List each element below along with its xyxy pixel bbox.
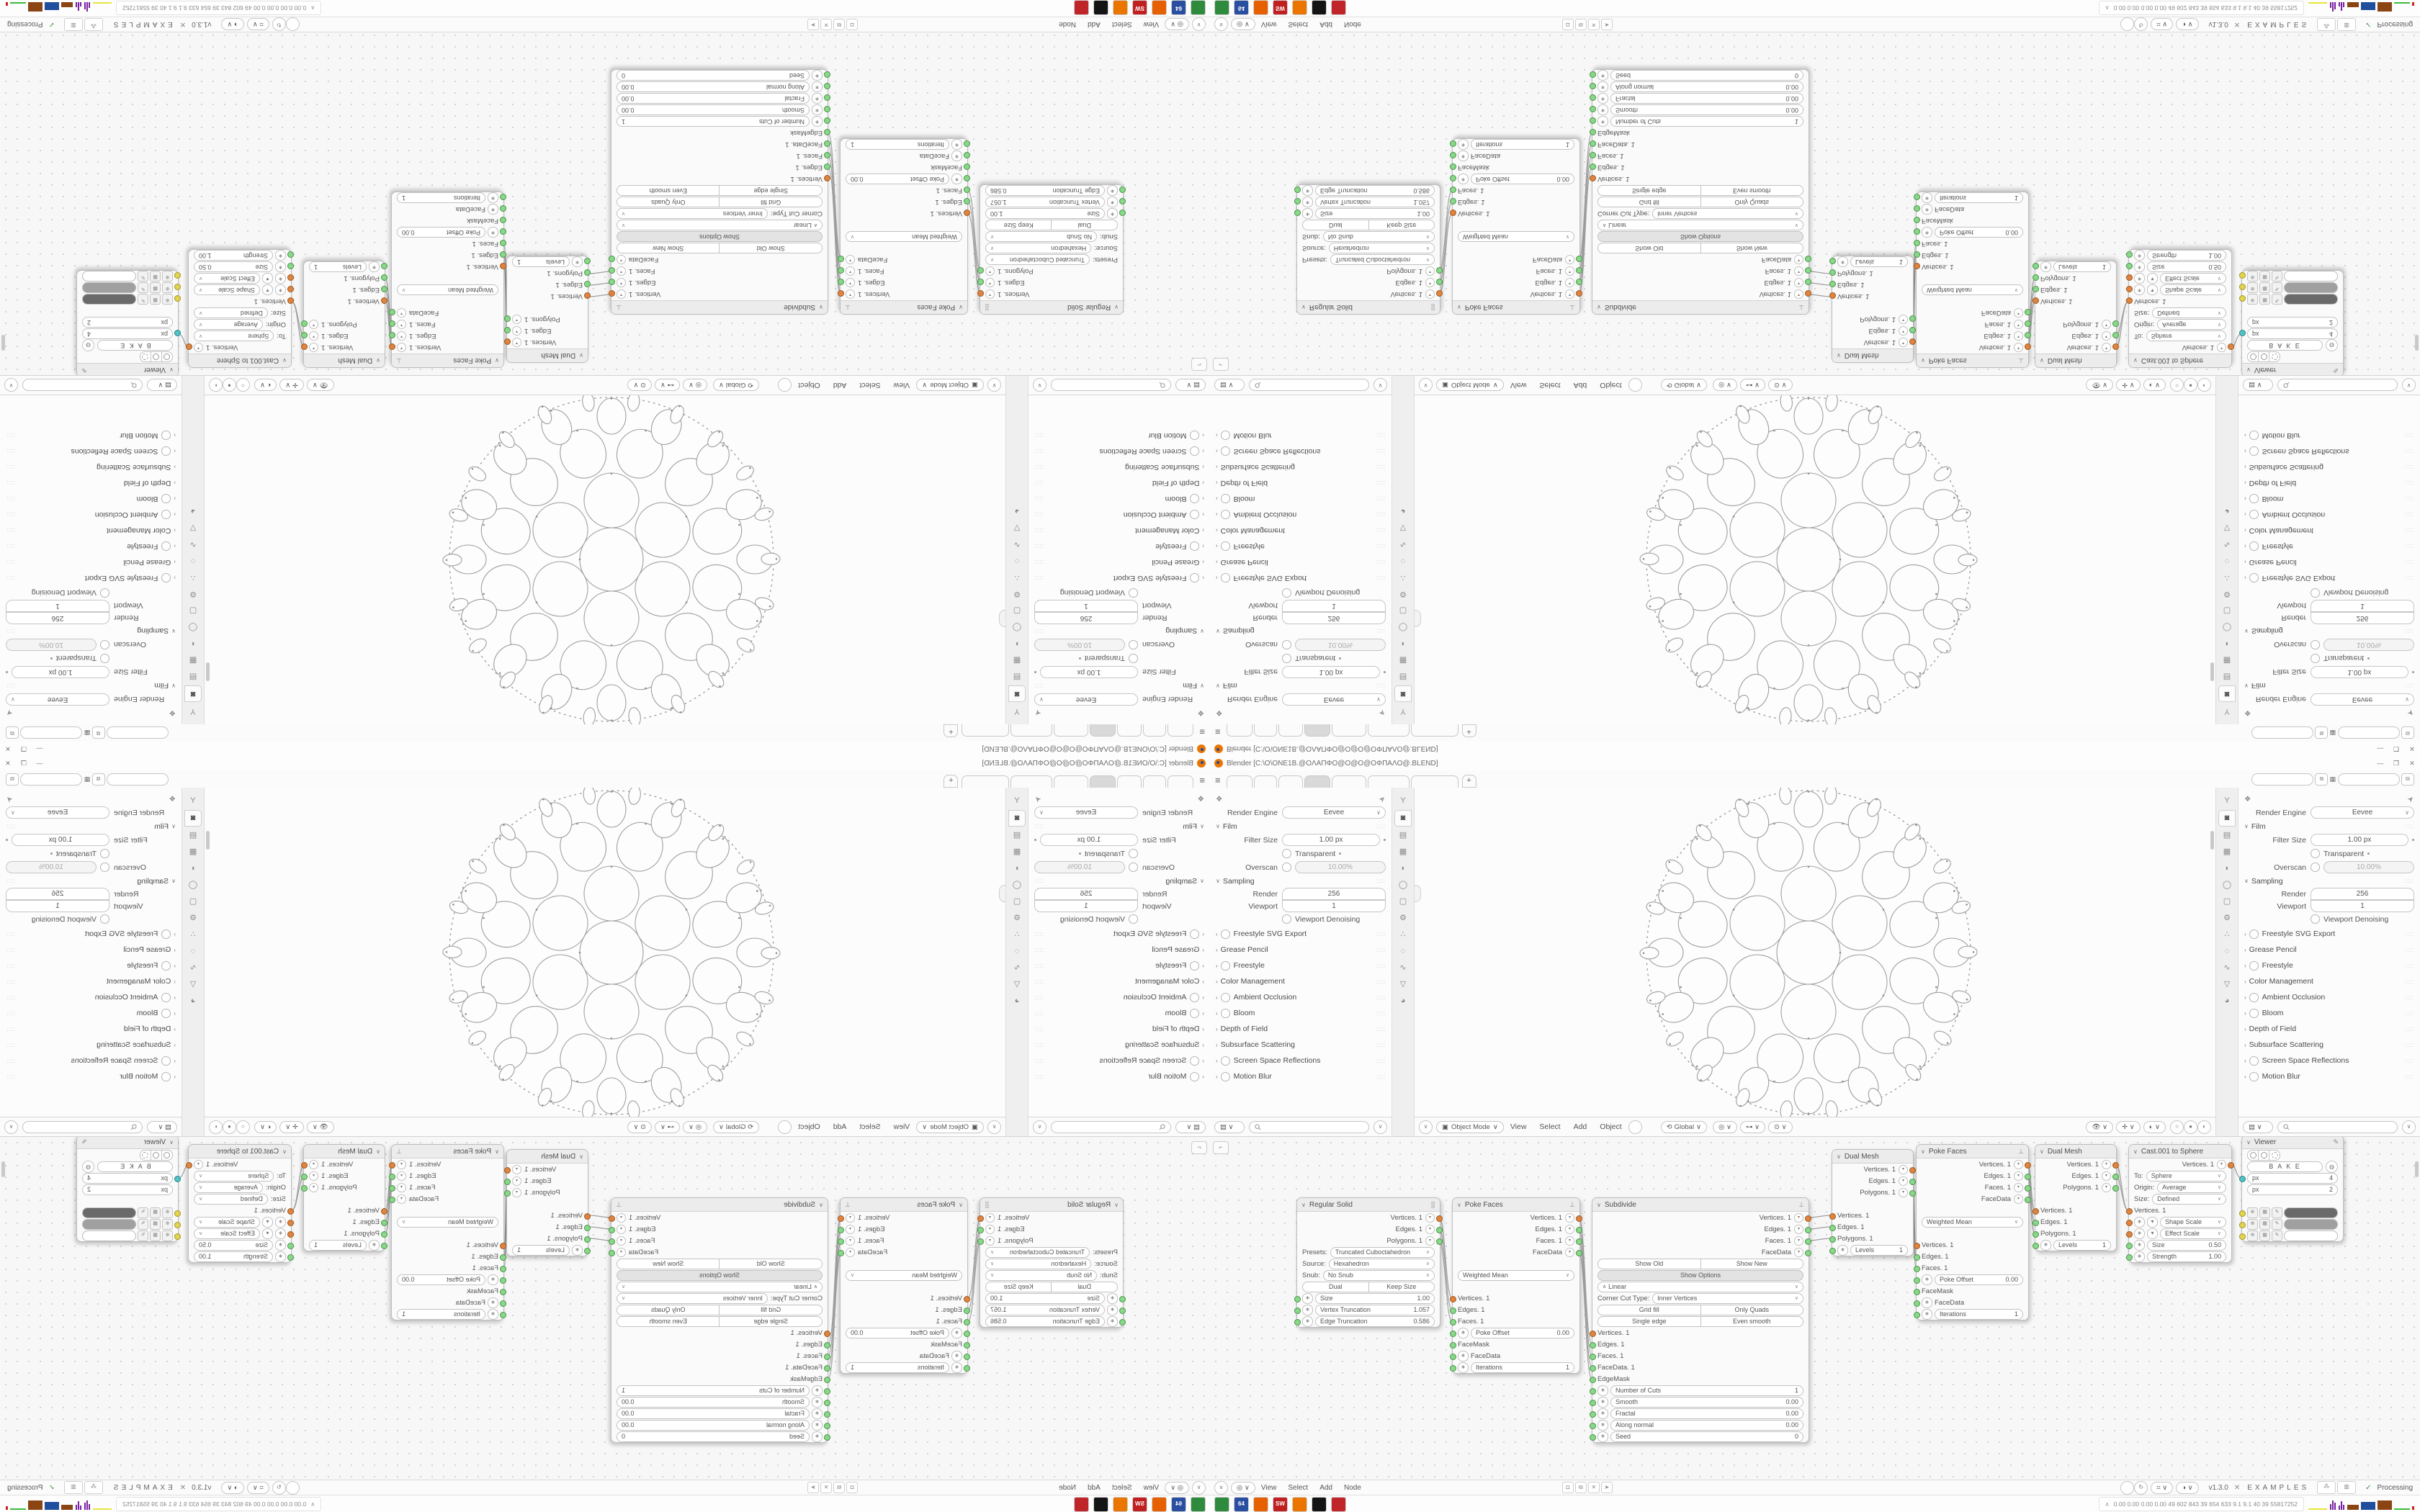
socket-input[interactable] [1119, 1319, 1126, 1326]
node-menu-view[interactable]: View [1144, 21, 1160, 29]
properties-tab-modifiers-icon[interactable]: ⚙ [1009, 911, 1025, 926]
workspace-tab-3[interactable] [1278, 775, 1303, 788]
socket-input[interactable] [1590, 153, 1596, 159]
socket-output[interactable] [609, 1238, 615, 1245]
properties-tab-material-icon[interactable]: ◕ [1009, 994, 1025, 1009]
node-title[interactable]: ∨Regular Solid⣿ [1297, 1198, 1440, 1212]
properties-tab-render-icon[interactable]: ◙ [2218, 685, 2236, 702]
workspace-tab-5[interactable] [1332, 775, 1366, 788]
properties-options-button[interactable]: ∨ [4, 379, 18, 392]
socket-input[interactable] [1294, 210, 1301, 217]
properties-tab-world-icon[interactable]: ◯ [1009, 619, 1025, 634]
properties-tab-physics-icon[interactable]: ◌ [1009, 944, 1025, 959]
close-button[interactable]: ✕ [0, 760, 16, 768]
shading-wireframe-button[interactable]: ○ [236, 1120, 250, 1134]
node-menu-add[interactable]: Add [1319, 21, 1332, 29]
properties-options-button[interactable]: ∨ [2402, 379, 2416, 392]
scene-copy-icon[interactable]: ⧉ [92, 773, 105, 786]
properties-tab-modifiers-icon[interactable]: ⚙ [185, 586, 201, 601]
socket-input[interactable] [1450, 187, 1456, 194]
socket-output[interactable] [389, 1197, 395, 1203]
node-regular-solid[interactable]: ∨Regular Solid⣿Vertices. 1▾Edges. 1▾Poly… [980, 1197, 1124, 1328]
socket-input[interactable] [1450, 141, 1456, 148]
socket-input[interactable] [1914, 1300, 1920, 1307]
properties-tab-output-icon[interactable]: ▤ [185, 828, 201, 843]
socket-input[interactable] [287, 1231, 294, 1238]
node-viewer-draw[interactable]: ∨Viewer✎B A K E◍px4px2⊕▦✎⊕▦✎⊕▦✎ [2241, 270, 2344, 376]
socket-output[interactable] [1805, 1250, 1811, 1256]
socket-output[interactable] [838, 291, 844, 297]
minimize-button[interactable]: — [32, 745, 48, 753]
socket-input[interactable] [1590, 141, 1596, 148]
taskbar-gimp-app-icon[interactable] [1093, 1, 1108, 16]
transform-orientation-select[interactable]: ⟲ Global∨ [1661, 1121, 1707, 1133]
socket-output[interactable] [186, 344, 192, 351]
socket-output[interactable] [2025, 1185, 2031, 1192]
workspace-tab-5[interactable] [1332, 724, 1366, 737]
node-tree-select[interactable]: ◎ ∨ [1231, 1482, 1255, 1494]
node-title[interactable]: ∨Dual Mesh [1832, 1150, 1913, 1164]
shading-solid-button[interactable]: ● [2184, 1120, 2197, 1134]
socket-input[interactable] [2239, 330, 2246, 337]
workspace-tab-3[interactable] [1117, 724, 1142, 737]
socket-output[interactable] [1576, 1215, 1582, 1222]
socket-input[interactable] [1294, 1319, 1301, 1326]
chevron-up-icon[interactable]: ∧ [2105, 4, 2110, 12]
scene-copy-icon[interactable]: ⧉ [2315, 726, 2328, 739]
properties-tab-particles-icon[interactable]: ∴ [185, 570, 201, 585]
pin-icon[interactable]: ➤ [1601, 1482, 1613, 1493]
taskbar-console-app-icon[interactable] [1214, 1497, 1229, 1512]
node-stats-button[interactable]: ⁂ [2317, 1481, 2336, 1494]
node-regular-solid[interactable]: ∨Regular Solid⣿Vertices. 1▾Edges. 1▾Poly… [1296, 1197, 1440, 1328]
socket-input[interactable] [1914, 229, 1920, 235]
socket-input[interactable] [381, 1208, 387, 1215]
taskbar-sw-app-icon[interactable]: SW [1132, 1497, 1147, 1512]
copy-icon[interactable]: ⧉ [833, 1482, 845, 1493]
socket-input[interactable] [381, 1243, 387, 1249]
socket-output[interactable] [389, 1185, 395, 1192]
properties-options-button[interactable]: ∨ [1033, 1120, 1047, 1134]
node-toolbar-tab[interactable]: ⌐ [1191, 1141, 1207, 1154]
properties-search-input[interactable] [22, 1121, 143, 1133]
viewport-extra-button[interactable] [1628, 379, 1642, 392]
socket-input[interactable] [1450, 1308, 1456, 1314]
socket-input[interactable] [824, 1434, 830, 1441]
render-engine-select[interactable]: Eevee∨ [1034, 693, 1138, 706]
socket-output[interactable] [977, 279, 984, 286]
socket-input[interactable] [1450, 1365, 1456, 1372]
sverchok-node-editor[interactable]: ⌐ ∨Regular Solid⣿Vertices. 1▾Edges. 1▾Po… [1210, 32, 2420, 376]
taskbar-floppy-64-app-icon[interactable]: 64 [1171, 1497, 1186, 1512]
viewport-menu-select[interactable]: Select [1539, 381, 1560, 390]
workspace-tab-5[interactable] [1054, 775, 1088, 788]
socket-input[interactable] [1590, 95, 1596, 102]
socket-input[interactable] [964, 1308, 970, 1314]
socket-input[interactable] [1914, 1266, 1920, 1272]
unlink-icon[interactable]: ✕ [1588, 1482, 1600, 1493]
shield-icon[interactable]: ◘ [846, 1482, 858, 1493]
node-menu-view[interactable]: View [1144, 1484, 1160, 1492]
properties-tab-tool-icon[interactable]: Y [1395, 703, 1411, 719]
node-poke-faces-2[interactable]: ∨Poke Faces⊥Vertices. 1▾Edges. 1▾Faces. … [391, 1144, 504, 1320]
node-tree-select[interactable]: ◎ ∨ [1165, 1482, 1189, 1494]
socket-input[interactable] [1450, 1342, 1456, 1349]
socket-input[interactable] [824, 1342, 830, 1349]
properties-options-button[interactable]: ∨ [1373, 379, 1387, 392]
viewport-scrollbar-nub[interactable] [2210, 831, 2214, 850]
taskbar-badge-app-icon[interactable] [1331, 1, 1346, 16]
properties-tab-object-data-icon[interactable]: ▽ [185, 977, 201, 992]
properties-tab-modifiers-icon[interactable]: ⚙ [1395, 586, 1411, 601]
socket-input[interactable] [2239, 296, 2246, 302]
interaction-mode-select[interactable]: ▣ Object Mode∨ [1436, 1121, 1504, 1133]
workspace-tab-2[interactable] [1143, 775, 1166, 788]
socket-input[interactable] [1590, 1342, 1596, 1349]
snap-mode-select[interactable]: ⊶ ∨ [655, 379, 680, 392]
taskbar-firefox-icon[interactable] [1152, 1, 1167, 16]
chart-button[interactable]: ▥ [64, 18, 83, 31]
examples-label[interactable]: EXAMPLES [111, 1484, 173, 1492]
socket-input[interactable] [584, 1248, 591, 1254]
node-poke-faces-2[interactable]: ∨Poke Faces⊥Vertices. 1▾Edges. 1▾Faces. … [1916, 192, 2029, 368]
socket-output[interactable] [389, 310, 395, 316]
node-dual-mesh-1[interactable]: ∨Dual MeshVertices. 1▾Edges. 1▾Polygons.… [1832, 256, 1914, 363]
socket-output[interactable] [1436, 1227, 1443, 1233]
node-title[interactable]: ∨Cast.001 to Sphere [2129, 354, 2231, 367]
socket-input[interactable] [584, 1213, 591, 1220]
update-icon[interactable]: ✕ [180, 1484, 186, 1492]
render-engine-select[interactable]: Eevee∨ [6, 806, 109, 819]
socket-output[interactable] [609, 1250, 615, 1256]
shading-options-toggle[interactable]: ◐ ∨ [254, 379, 277, 392]
properties-tab-particles-icon[interactable]: ∴ [2219, 927, 2235, 942]
properties-tab-render-icon[interactable]: ◙ [184, 685, 202, 702]
viewport-menu-select[interactable]: Select [859, 1122, 880, 1131]
viewport-menu-object[interactable]: Object [1600, 1122, 1621, 1131]
node-toolbar-tab[interactable]: ⌐ [1213, 358, 1229, 371]
node-title[interactable]: ∨Cast.001 to Sphere [2129, 1145, 2231, 1158]
properties-tab-constraints-icon[interactable]: ∿ [1009, 536, 1025, 552]
editor-type-button[interactable]: ∨ [1419, 379, 1433, 392]
editor-type-button[interactable]: ∨ [987, 379, 1001, 392]
grid-snap-select[interactable]: ⌗ ∨ [247, 19, 269, 31]
editor-type-button[interactable]: ∨ [1419, 1120, 1433, 1134]
socket-output[interactable] [977, 1238, 984, 1245]
socket-input[interactable] [1829, 1213, 1836, 1220]
node-title[interactable]: ∨Regular Solid⣿ [1297, 300, 1440, 314]
node-menu-select[interactable]: Select [1112, 1484, 1132, 1492]
node-title[interactable]: ∨Dual Mesh [507, 1150, 588, 1164]
socket-output[interactable] [1436, 1238, 1443, 1245]
socket-input[interactable] [1590, 1377, 1596, 1383]
node-title[interactable]: ∨Viewer✎ [77, 1136, 178, 1149]
socket-output[interactable] [389, 1162, 395, 1169]
properties-tab-material-icon[interactable]: ◕ [2219, 994, 2235, 1009]
socket-input[interactable] [2126, 1208, 2133, 1215]
workspace-tab-5[interactable] [1054, 724, 1088, 737]
node-toolbar-tab[interactable]: ⌐ [1191, 358, 1207, 371]
node-regular-solid[interactable]: ∨Regular Solid⣿Vertices. 1▾Edges. 1▾Poly… [980, 184, 1124, 315]
properties-tab-modifiers-icon[interactable]: ⚙ [1009, 586, 1025, 601]
properties-tab-output-icon[interactable]: ▤ [2219, 669, 2235, 684]
view-layer-copy-icon[interactable]: ⧉ [2401, 726, 2414, 739]
properties-tab-scene-icon[interactable]: ◗ [1009, 636, 1025, 651]
socket-input[interactable] [964, 1296, 970, 1302]
examples-label[interactable]: EXAMPLES [2247, 21, 2309, 29]
workspace-tab-4[interactable] [1090, 775, 1116, 788]
properties-filter-button[interactable]: ▤ ∨ [1175, 1121, 1206, 1133]
node-dual-mesh-2[interactable]: ∨Dual MeshVertices. 1▾Edges. 1▾Polygons.… [303, 1144, 385, 1251]
properties-tab-scene-icon[interactable]: ◗ [1009, 861, 1025, 876]
viewport-menu-view[interactable]: View [1510, 1122, 1527, 1131]
socket-input[interactable] [1590, 72, 1596, 78]
node-title[interactable]: ∨Dual Mesh [507, 348, 588, 362]
socket-output[interactable] [1805, 1227, 1811, 1233]
socket-input[interactable] [500, 1277, 506, 1284]
socket-input[interactable] [381, 1231, 387, 1238]
socket-input[interactable] [824, 1411, 830, 1418]
properties-tab-constraints-icon[interactable]: ∿ [1395, 960, 1411, 976]
taskbar-badge-app-icon[interactable] [1331, 1497, 1346, 1512]
shading-wireframe-button[interactable]: ○ [2170, 1120, 2184, 1134]
node-dual-mesh-2[interactable]: ∨Dual MeshVertices. 1▾Edges. 1▾Polygons.… [2035, 1144, 2117, 1251]
socket-input[interactable] [1914, 1254, 1920, 1261]
properties-tab-output-icon[interactable]: ▤ [1009, 669, 1025, 684]
properties-tab-tool-icon[interactable]: Y [1009, 703, 1025, 719]
show-overlays-toggle[interactable]: 👁 ∨ [2086, 379, 2113, 392]
shading-options-toggle[interactable]: ◐ ∨ [2143, 379, 2166, 392]
viewport-menu-object[interactable]: Object [1600, 381, 1621, 390]
pin-icon[interactable]: ➤ [1377, 708, 1388, 719]
copy-icon[interactable]: ⧉ [833, 19, 845, 30]
add-workspace-button[interactable]: + [1462, 724, 1476, 737]
properties-filter-button[interactable]: ▤ ∨ [2243, 1121, 2273, 1133]
shield-icon[interactable]: ◘ [1562, 1482, 1574, 1493]
properties-tab-object-icon[interactable]: ▢ [1395, 603, 1411, 618]
socket-output[interactable] [504, 1179, 511, 1185]
properties-tab-render-icon[interactable]: ◙ [1008, 810, 1026, 827]
socket-input[interactable] [824, 1388, 830, 1395]
node-dual-mesh-2[interactable]: ∨Dual MeshVertices. 1▾Edges. 1▾Polygons.… [2035, 261, 2117, 368]
taskbar-firefox-icon[interactable] [1152, 1497, 1167, 1512]
node-title[interactable]: ∨Poke Faces⊥ [841, 300, 967, 314]
socket-input[interactable] [1119, 1308, 1126, 1314]
snap-mode-select[interactable]: ⊶ ∨ [655, 1121, 680, 1133]
properties-tab-material-icon[interactable]: ◕ [185, 503, 201, 518]
proportional-editing-toggle[interactable]: ⊙ ∨ [627, 379, 652, 392]
node-menu-select[interactable]: Select [1288, 1484, 1308, 1492]
overlay-select[interactable]: ◑ ∨ [2176, 19, 2198, 31]
scene-selector[interactable] [2251, 726, 2313, 739]
update-icon[interactable]: ✕ [180, 21, 186, 29]
socket-output[interactable] [2025, 1197, 2031, 1203]
socket-input[interactable] [2033, 298, 2039, 305]
socket-output[interactable] [838, 268, 844, 274]
socket-input[interactable] [174, 1176, 181, 1182]
properties-options-button[interactable]: ∨ [4, 1120, 18, 1134]
node-title[interactable]: ∨Dual Mesh [304, 354, 385, 367]
socket-input[interactable] [500, 1243, 506, 1249]
workspace-tab-4[interactable] [1304, 775, 1330, 788]
transform-orientation-select[interactable]: ⟲ Global∨ [1661, 379, 1707, 392]
minimize-button[interactable]: — [2372, 745, 2388, 753]
socket-output[interactable] [2025, 1174, 2031, 1180]
taskbar-gimp-app-icon[interactable] [1093, 1497, 1108, 1512]
properties-tab-render-icon[interactable]: ◙ [184, 810, 202, 827]
shading-wireframe-button[interactable]: ○ [236, 379, 250, 392]
socket-input[interactable] [1590, 84, 1596, 90]
properties-tab-modifiers-icon[interactable]: ⚙ [2219, 586, 2235, 601]
sphere-icon[interactable]: ◍ [82, 340, 94, 352]
node-dual-mesh-1[interactable]: ∨Dual MeshVertices. 1▾Edges. 1▾Polygons.… [506, 1149, 588, 1256]
node-menu-add[interactable]: Add [1088, 21, 1101, 29]
workspace-tab-7[interactable] [962, 724, 1009, 737]
taskbar-floppy-64-app-icon[interactable]: 64 [1234, 1497, 1249, 1512]
socket-input[interactable] [824, 1354, 830, 1360]
socket-input[interactable] [824, 1423, 830, 1429]
sphere-icon[interactable]: ◍ [2326, 340, 2338, 352]
shading-material-button[interactable]: ◐ [209, 1120, 223, 1134]
properties-tab-scene-icon[interactable]: ◗ [2219, 861, 2235, 876]
render-engine-select[interactable]: Eevee∨ [1282, 693, 1386, 706]
properties-tab-view-layer-icon[interactable]: ▦ [185, 845, 201, 860]
properties-search-input[interactable] [2277, 379, 2398, 392]
taskbar-gimp-app-icon[interactable] [1312, 1, 1327, 16]
chevron-up-icon[interactable]: ∧ [2105, 1500, 2110, 1508]
node-subdivide[interactable]: ∨Subdivide⊥Vertices. 1▾Edges. 1▾Faces. 1… [1592, 69, 1809, 315]
workspace-tab-6[interactable] [1368, 724, 1410, 737]
node-title[interactable]: ∨Dual Mesh [2035, 354, 2116, 367]
add-workspace-button[interactable]: + [1462, 775, 1476, 788]
shading-solid-button[interactable]: ● [223, 379, 236, 392]
properties-tab-tool-icon[interactable]: Y [1395, 793, 1411, 809]
snap-mode-select[interactable]: ⊶ ∨ [1740, 1121, 1765, 1133]
socket-input[interactable] [500, 1300, 506, 1307]
shading-options-toggle[interactable]: ◐ ∨ [254, 1121, 277, 1133]
workspace-tab-3[interactable] [1278, 724, 1303, 737]
properties-tab-object-icon[interactable]: ▢ [2219, 894, 2235, 909]
properties-tab-object-data-icon[interactable]: ▽ [185, 520, 201, 535]
properties-tab-tool-icon[interactable]: Y [2219, 793, 2235, 809]
socket-output[interactable] [2025, 1162, 2031, 1169]
socket-output[interactable] [1909, 1179, 1916, 1185]
viewport-menu-add[interactable]: Add [1574, 1122, 1587, 1131]
node-title[interactable]: ∨Poke Faces⊥ [841, 1198, 967, 1212]
socket-output[interactable] [838, 279, 844, 286]
socket-output[interactable] [838, 1250, 844, 1256]
proportional-editing-toggle[interactable]: ⊙ ∨ [627, 1121, 652, 1133]
chart-button[interactable]: ▥ [64, 1481, 83, 1494]
properties-tab-scene-icon[interactable]: ◗ [1395, 636, 1411, 651]
properties-tab-particles-icon[interactable]: ∴ [1009, 570, 1025, 585]
socket-output[interactable] [977, 1227, 984, 1233]
socket-input[interactable] [2239, 273, 2246, 279]
properties-tab-output-icon[interactable]: ▤ [1395, 828, 1411, 843]
properties-tab-material-icon[interactable]: ◕ [2219, 503, 2235, 518]
socket-output[interactable] [838, 256, 844, 263]
taskbar-console-app-icon[interactable] [1191, 1, 1206, 16]
menu-hamburger-icon[interactable]: ≡ [1215, 775, 1221, 786]
socket-input[interactable] [2126, 252, 2133, 258]
properties-tab-view-layer-icon[interactable]: ▦ [1009, 652, 1025, 667]
render-engine-select[interactable]: Eevee∨ [1034, 806, 1138, 819]
viewport-scrollbar-nub[interactable] [206, 831, 210, 850]
taskbar-sw-app-icon[interactable]: SW [1273, 1, 1288, 16]
snap-toggle[interactable]: ◎ ∨ [683, 1121, 707, 1133]
socket-output[interactable] [389, 1174, 395, 1180]
socket-input[interactable] [1590, 1388, 1596, 1395]
interaction-mode-select[interactable]: ▣ Object Mode∨ [1436, 379, 1504, 392]
properties-tab-modifiers-icon[interactable]: ⚙ [2219, 911, 2235, 926]
workspace-tab-4[interactable] [1090, 724, 1116, 737]
node-title[interactable]: ∨Poke Faces⊥ [392, 354, 503, 367]
viewport-extra-button[interactable] [778, 1120, 792, 1134]
node-regular-solid[interactable]: ∨Regular Solid⣿Vertices. 1▾Edges. 1▾Poly… [1296, 184, 1440, 315]
socket-input[interactable] [1590, 1423, 1596, 1429]
socket-input[interactable] [1119, 1296, 1126, 1302]
show-gizmo-toggle[interactable]: ✛ ∨ [2116, 1121, 2141, 1133]
view-layer-selector[interactable] [20, 773, 82, 786]
properties-tab-world-icon[interactable]: ◯ [185, 878, 201, 893]
socket-output[interactable] [838, 1238, 844, 1245]
properties-tab-output-icon[interactable]: ▤ [2219, 828, 2235, 843]
socket-output[interactable] [2112, 1185, 2119, 1192]
socket-input[interactable] [1450, 1296, 1456, 1302]
examples-label[interactable]: EXAMPLES [111, 21, 173, 29]
node-cast-to-sphere[interactable]: ∨Cast.001 to SphereVertices. 1▾To:Sphere… [2128, 249, 2232, 368]
socket-input[interactable] [1590, 176, 1596, 182]
viewport-scrollbar-nub[interactable] [2210, 662, 2214, 681]
socket-input[interactable] [1450, 164, 1456, 171]
socket-input[interactable] [2033, 287, 2039, 293]
socket-input[interactable] [2239, 1233, 2246, 1240]
socket-input[interactable] [1914, 1277, 1920, 1284]
properties-tab-world-icon[interactable]: ◯ [1395, 619, 1411, 634]
render-engine-select[interactable]: Eevee∨ [2311, 693, 2414, 706]
properties-tab-physics-icon[interactable]: ◌ [1395, 944, 1411, 959]
socket-input[interactable] [1590, 107, 1596, 113]
properties-tab-scene-icon[interactable]: ◗ [185, 636, 201, 651]
socket-input[interactable] [1294, 1308, 1301, 1314]
node-cast-to-sphere[interactable]: ∨Cast.001 to SphereVertices. 1▾To:Sphere… [188, 1144, 292, 1263]
workspace-tab-1[interactable] [1168, 775, 1193, 788]
snap-circle-button[interactable] [286, 18, 300, 32]
properties-tab-view-layer-icon[interactable]: ▦ [1395, 845, 1411, 860]
socket-input[interactable] [1914, 264, 1920, 270]
properties-search-input[interactable] [1051, 1121, 1171, 1133]
interaction-mode-select[interactable]: ▣ Object Mode∨ [916, 1121, 984, 1133]
properties-search-input[interactable] [2277, 1121, 2398, 1133]
socket-input[interactable] [1590, 130, 1596, 136]
snap-circle-button[interactable] [2120, 18, 2134, 32]
node-stats-button[interactable]: ⁂ [84, 1481, 103, 1494]
copy-icon[interactable]: ⧉ [1575, 1482, 1587, 1493]
properties-tab-output-icon[interactable]: ▤ [1395, 669, 1411, 684]
properties-filter-button[interactable]: ▤ ∨ [1214, 1121, 1245, 1133]
node-title[interactable]: ∨Poke Faces⊥ [1453, 300, 1579, 314]
node-title[interactable]: ∨Dual Mesh [1832, 348, 1913, 362]
properties-tab-physics-icon[interactable]: ◌ [1395, 553, 1411, 568]
properties-tab-object-data-icon[interactable]: ▽ [2219, 520, 2235, 535]
socket-input[interactable] [1914, 240, 1920, 247]
taskbar-console-app-icon[interactable] [1214, 1, 1229, 16]
workspace-tab-7[interactable] [1411, 724, 1458, 737]
update-icon[interactable]: ✕ [2234, 21, 2240, 29]
socket-input[interactable] [1590, 1434, 1596, 1441]
socket-input[interactable] [500, 1289, 506, 1295]
socket-input[interactable] [1450, 153, 1456, 159]
